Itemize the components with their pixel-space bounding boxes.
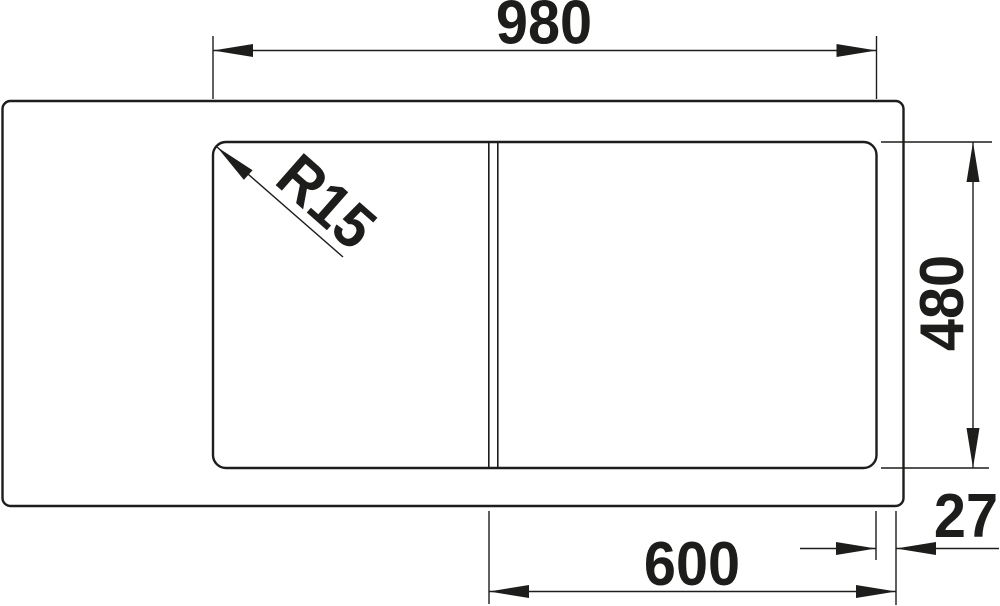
dimension-label-rim-offset: 27 — [934, 481, 998, 550]
sink-rim-outline — [3, 101, 904, 506]
arrowhead-left-icon — [213, 44, 253, 57]
arrowhead-bottom-icon — [967, 428, 980, 468]
dimension-rim-offset: 27 — [800, 481, 999, 605]
dimension-overall-width: 980 — [213, 0, 877, 99]
arrowhead-left-icon — [836, 542, 876, 555]
dimension-label-overall-width: 980 — [496, 0, 592, 57]
arrowhead-left-icon — [489, 585, 529, 598]
arrowhead-top-icon — [967, 142, 980, 182]
sink-technical-drawing: 980 R15 480 27 — [0, 0, 1000, 606]
dimension-bowl-width: 600 — [489, 511, 896, 604]
dimension-depth: 480 — [881, 142, 992, 468]
drawing-canvas: 980 R15 480 27 — [0, 0, 1000, 606]
dimension-label-depth: 480 — [907, 255, 976, 351]
corner-radius-callout: R15 — [213, 141, 389, 263]
arrowhead-right-icon — [896, 542, 936, 555]
radius-label: R15 — [264, 141, 389, 263]
arrowhead-right-icon — [837, 44, 877, 57]
bowl-divider — [489, 143, 498, 467]
arrowhead-right-icon — [856, 585, 896, 598]
dimension-label-bowl-width: 600 — [644, 529, 740, 598]
